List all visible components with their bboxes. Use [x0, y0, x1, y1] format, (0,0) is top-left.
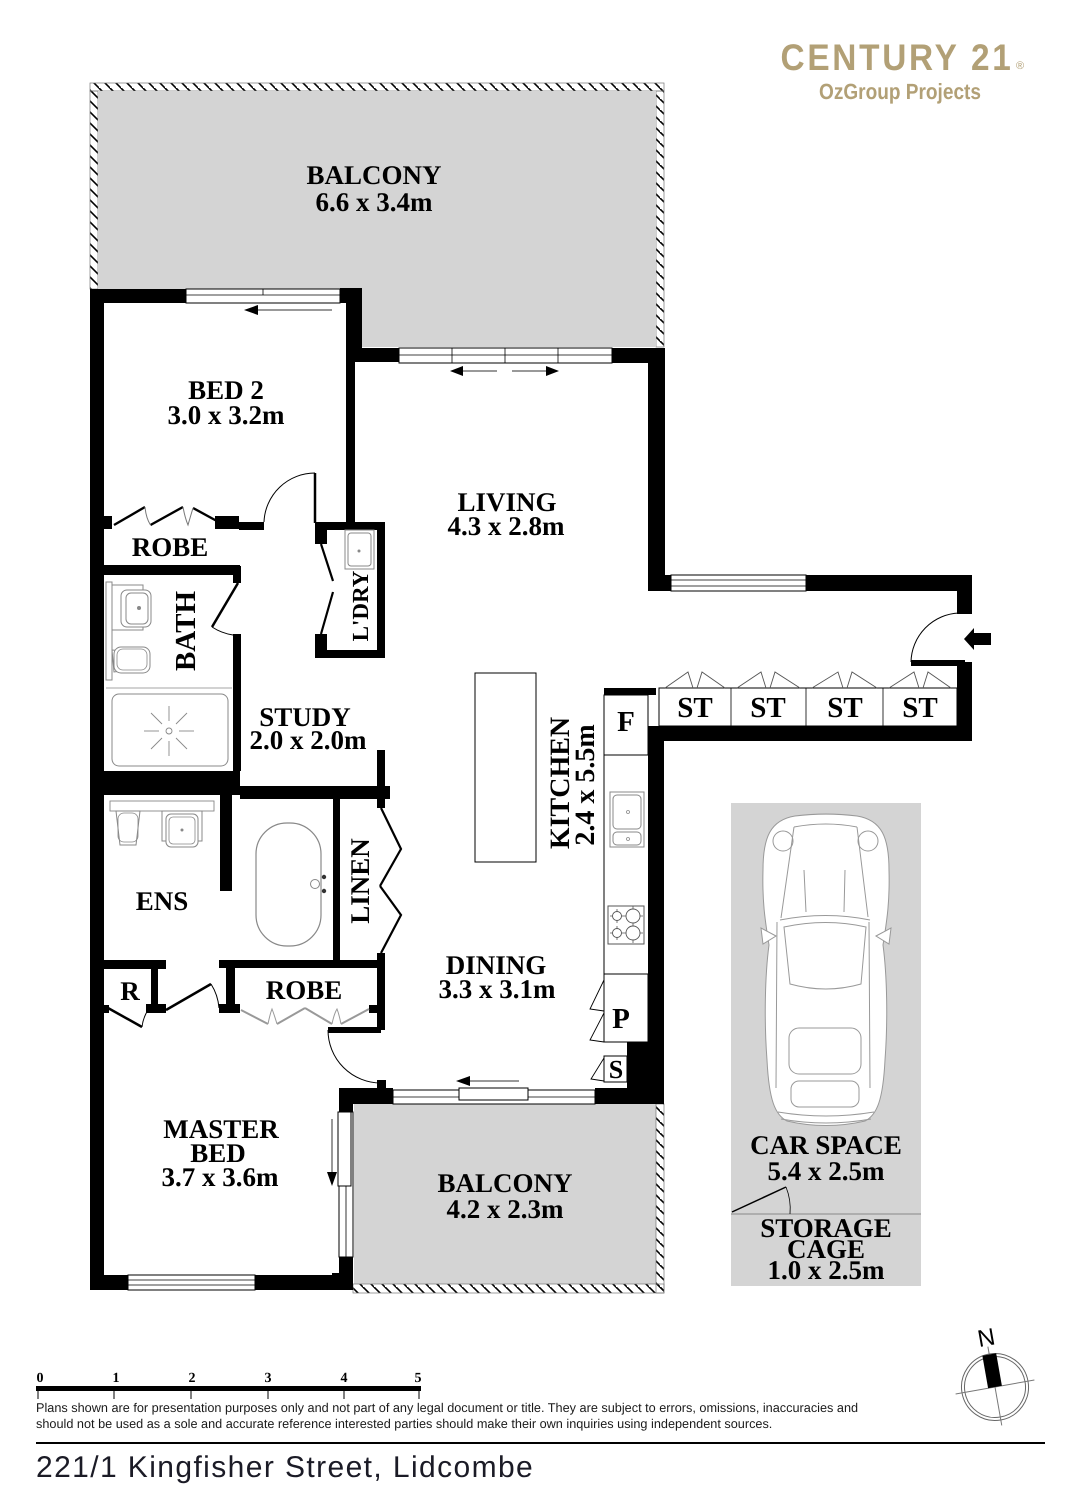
svg-text:ROBE: ROBE: [132, 532, 209, 562]
svg-text:1.0 x 2.5m: 1.0 x 2.5m: [768, 1255, 886, 1285]
svg-text:0: 0: [37, 1371, 44, 1386]
svg-text:3.3 x 3.1m: 3.3 x 3.1m: [439, 974, 557, 1004]
svg-text:1: 1: [113, 1371, 120, 1386]
svg-text:should not be used as a sole a: should not be used as a sole and accurat…: [36, 1417, 772, 1431]
svg-text:2: 2: [189, 1371, 196, 1386]
svg-text:3.7 x 3.6m: 3.7 x 3.6m: [162, 1162, 280, 1192]
svg-text:4.3 x 2.8m: 4.3 x 2.8m: [448, 511, 566, 541]
svg-text:5: 5: [415, 1371, 422, 1386]
svg-text:CENTURY 21: CENTURY 21: [781, 37, 1014, 78]
svg-text:L'DRY: L'DRY: [348, 570, 373, 641]
svg-text:LINEN: LINEN: [345, 838, 375, 924]
svg-text:Plans shown are for presentati: Plans shown are for presentation purpose…: [36, 1401, 858, 1415]
svg-text:ST: ST: [677, 692, 712, 724]
svg-text:ROBE: ROBE: [266, 975, 343, 1005]
svg-text:F: F: [617, 706, 635, 738]
svg-text:ST: ST: [902, 692, 937, 724]
svg-text:BATH: BATH: [170, 591, 202, 671]
svg-text:ENS: ENS: [136, 886, 189, 916]
svg-text:2.4 x 5.5m: 2.4 x 5.5m: [570, 724, 601, 845]
svg-text:P: P: [612, 1003, 630, 1035]
svg-text:ST: ST: [827, 692, 862, 724]
svg-text:4: 4: [341, 1371, 348, 1386]
svg-text:S: S: [609, 1055, 623, 1084]
svg-text:4.2 x 2.3m: 4.2 x 2.3m: [447, 1194, 565, 1224]
svg-text:5.4 x 2.5m: 5.4 x 2.5m: [768, 1156, 886, 1186]
svg-text:3.0 x 3.2m: 3.0 x 3.2m: [168, 400, 286, 430]
svg-text:6.6 x 3.4m: 6.6 x 3.4m: [316, 187, 434, 217]
svg-text:®: ®: [1016, 60, 1024, 72]
svg-text:OzGroup Projects: OzGroup Projects: [819, 79, 981, 104]
svg-text:ST: ST: [750, 692, 785, 724]
svg-text:221/1 Kingfisher Street, Lidco: 221/1 Kingfisher Street, Lidcombe: [36, 1451, 534, 1484]
svg-text:3: 3: [265, 1371, 272, 1386]
svg-text:R: R: [120, 976, 140, 1006]
svg-text:BALCONY: BALCONY: [306, 160, 441, 190]
svg-text:2.0 x 2.0m: 2.0 x 2.0m: [250, 725, 368, 755]
